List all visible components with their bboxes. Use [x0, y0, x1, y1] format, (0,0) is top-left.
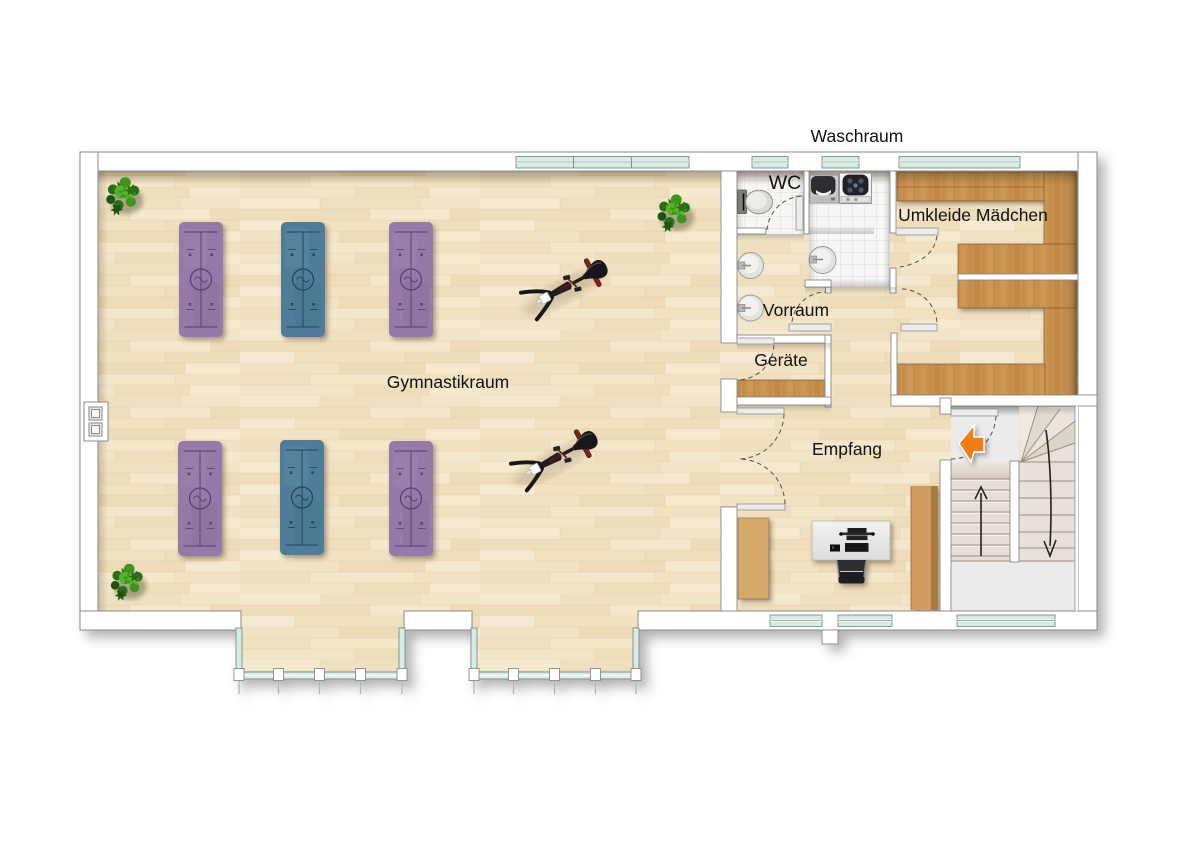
svg-text:Empfang: Empfang	[812, 439, 882, 459]
svg-text:Waschraum: Waschraum	[811, 126, 904, 146]
svg-text:WC: WC	[769, 172, 802, 194]
svg-text:Umkleide Mädchen: Umkleide Mädchen	[898, 205, 1048, 225]
svg-text:Geräte: Geräte	[754, 350, 808, 370]
svg-text:Gymnastikraum: Gymnastikraum	[387, 372, 510, 392]
svg-text:Vorraum: Vorraum	[763, 300, 829, 320]
